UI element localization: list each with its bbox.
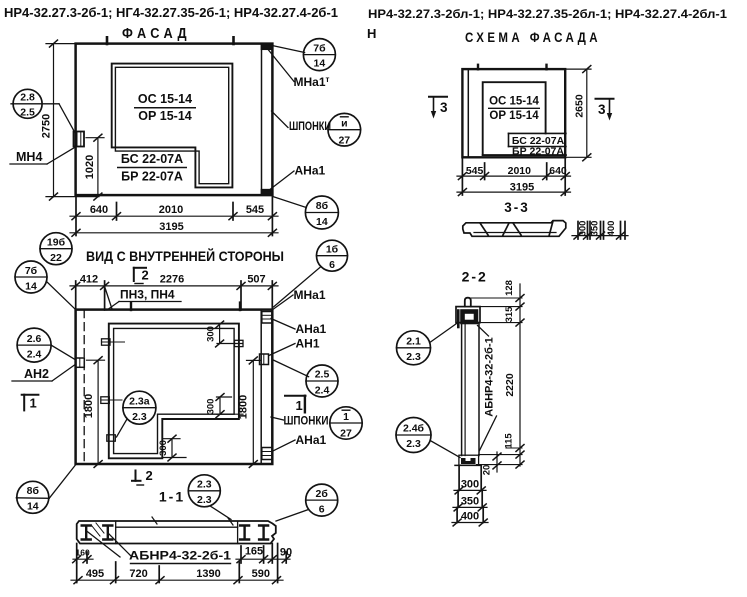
svg-text:2.6: 2.6 [27, 333, 42, 345]
svg-text:БС 22-07А: БС 22-07А [121, 152, 183, 166]
svg-text:2.5: 2.5 [315, 369, 330, 381]
svg-text:545: 545 [246, 204, 264, 216]
svg-text:АН2: АН2 [24, 367, 49, 381]
svg-text:300: 300 [206, 399, 217, 415]
svg-text:20: 20 [482, 465, 493, 476]
svg-text:2-2: 2-2 [462, 269, 488, 285]
svg-text:ШПОНКИ: ШПОНКИ [289, 121, 331, 133]
svg-text:АНа1: АНа1 [295, 164, 326, 178]
svg-text:2.3: 2.3 [197, 479, 212, 491]
svg-text:и: и [341, 118, 347, 130]
svg-text:3195: 3195 [159, 221, 183, 233]
svg-text:128: 128 [504, 280, 515, 296]
svg-text:2.5: 2.5 [20, 107, 35, 119]
svg-text:90: 90 [280, 547, 292, 559]
svg-text:14: 14 [25, 281, 37, 293]
svg-text:ОС 15-14: ОС 15-14 [138, 92, 192, 106]
svg-text:2010: 2010 [159, 204, 183, 216]
svg-text:115: 115 [504, 433, 515, 449]
svg-text:АБНР4-32-2б-1: АБНР4-32-2б-1 [129, 549, 231, 563]
svg-text:АНа1: АНа1 [296, 433, 327, 447]
svg-text:412: 412 [80, 274, 98, 286]
svg-text:Н: Н [367, 26, 376, 41]
svg-text:1: 1 [30, 396, 37, 411]
svg-text:300: 300 [158, 440, 169, 456]
svg-text:2б: 2б [316, 488, 329, 500]
svg-text:1390: 1390 [196, 568, 220, 580]
svg-text:2.4б: 2.4б [403, 423, 425, 435]
svg-text:2.4: 2.4 [27, 348, 42, 360]
svg-text:ФАСАД: ФАСАД [122, 26, 191, 42]
svg-text:2: 2 [146, 468, 153, 483]
svg-text:1: 1 [296, 398, 303, 413]
svg-text:1-1: 1-1 [159, 489, 185, 505]
svg-text:2.4: 2.4 [315, 384, 330, 396]
svg-text:545: 545 [466, 165, 484, 177]
svg-text:507: 507 [247, 274, 265, 286]
svg-text:ШПОНКИ: ШПОНКИ [284, 416, 329, 428]
svg-text:300: 300 [461, 479, 479, 491]
svg-text:8б: 8б [316, 200, 329, 212]
svg-text:640: 640 [90, 204, 108, 216]
svg-text:АНа1: АНа1 [296, 322, 327, 336]
svg-text:2.3: 2.3 [197, 494, 212, 506]
svg-text:БР 22-07А: БР 22-07А [121, 170, 183, 184]
svg-text:2.3а: 2.3а [129, 395, 150, 407]
svg-text:1б: 1б [326, 244, 339, 256]
svg-text:400: 400 [606, 221, 617, 237]
svg-text:ОС 15-14: ОС 15-14 [489, 96, 539, 108]
svg-text:2.3: 2.3 [406, 351, 421, 363]
svg-text:590: 590 [252, 568, 270, 580]
svg-text:400: 400 [461, 511, 479, 523]
svg-text:АН1: АН1 [296, 337, 320, 351]
svg-text:14: 14 [27, 501, 39, 513]
svg-text:2.3: 2.3 [132, 411, 147, 423]
svg-text:НР4-32.27.3-2бл-1; НР4-32.27.: НР4-32.27.3-2бл-1; НР4-32.27.35-2бл-1; Н… [368, 7, 727, 21]
svg-text:6: 6 [329, 259, 335, 271]
svg-text:7б: 7б [25, 265, 38, 277]
svg-text:СХЕМА ФАСАДА: СХЕМА ФАСАДА [465, 30, 601, 45]
svg-text:2276: 2276 [160, 274, 184, 286]
svg-text:165: 165 [245, 546, 263, 558]
svg-text:19б: 19б [47, 237, 66, 249]
svg-text:ВИД С ВНУТРЕННЕЙ СТОРОНЫ: ВИД С ВНУТРЕННЕЙ СТОРОНЫ [86, 247, 284, 264]
svg-text:2.3: 2.3 [406, 438, 421, 450]
svg-text:НР4-32.27.3-2б-1; НГ4-32.27.3: НР4-32.27.3-2б-1; НГ4-32.27.35-2б-1; НР4… [4, 5, 338, 20]
svg-text:160: 160 [76, 548, 90, 558]
svg-text:2010: 2010 [508, 165, 532, 177]
svg-text:2750: 2750 [41, 114, 53, 138]
svg-text:350: 350 [590, 221, 601, 237]
svg-text:6: 6 [319, 503, 325, 515]
svg-text:300: 300 [206, 326, 217, 342]
svg-text:МН4: МН4 [16, 150, 42, 164]
svg-text:1800: 1800 [238, 395, 250, 419]
svg-text:315: 315 [504, 306, 515, 323]
svg-text:2.1: 2.1 [406, 336, 421, 348]
svg-text:640: 640 [549, 165, 567, 177]
svg-text:2650: 2650 [574, 94, 586, 118]
svg-text:2.8: 2.8 [20, 92, 35, 104]
svg-text:1800: 1800 [83, 394, 95, 418]
svg-text:495: 495 [86, 568, 104, 580]
svg-text:14: 14 [316, 216, 328, 228]
svg-text:МНа1: МНа1 [294, 288, 326, 302]
svg-text:2: 2 [142, 268, 149, 283]
svg-text:МНа1т: МНа1т [294, 75, 330, 89]
svg-text:3-3: 3-3 [504, 200, 530, 215]
svg-text:3195: 3195 [510, 181, 534, 193]
svg-text:ОР 15-14: ОР 15-14 [489, 110, 539, 122]
svg-text:7б: 7б [313, 43, 326, 55]
svg-text:2220: 2220 [504, 373, 516, 397]
svg-text:14: 14 [314, 58, 326, 70]
svg-text:720: 720 [129, 568, 147, 580]
svg-text:8б: 8б [27, 485, 40, 497]
svg-text:БР 22-07А: БР 22-07А [512, 145, 564, 157]
svg-text:АБНР4-32-2б-1: АБНР4-32-2б-1 [484, 337, 496, 417]
svg-text:27: 27 [338, 135, 350, 147]
svg-text:27: 27 [340, 428, 352, 440]
svg-text:3: 3 [440, 100, 448, 115]
svg-text:ОР 15-14: ОР 15-14 [138, 109, 192, 123]
svg-text:ПН3, ПН4: ПН3, ПН4 [120, 288, 175, 302]
svg-text:300: 300 [578, 221, 589, 237]
svg-text:1: 1 [343, 411, 349, 423]
svg-text:350: 350 [461, 496, 479, 508]
svg-text:1020: 1020 [84, 155, 96, 179]
svg-text:3: 3 [598, 102, 606, 117]
svg-text:22: 22 [50, 252, 62, 264]
